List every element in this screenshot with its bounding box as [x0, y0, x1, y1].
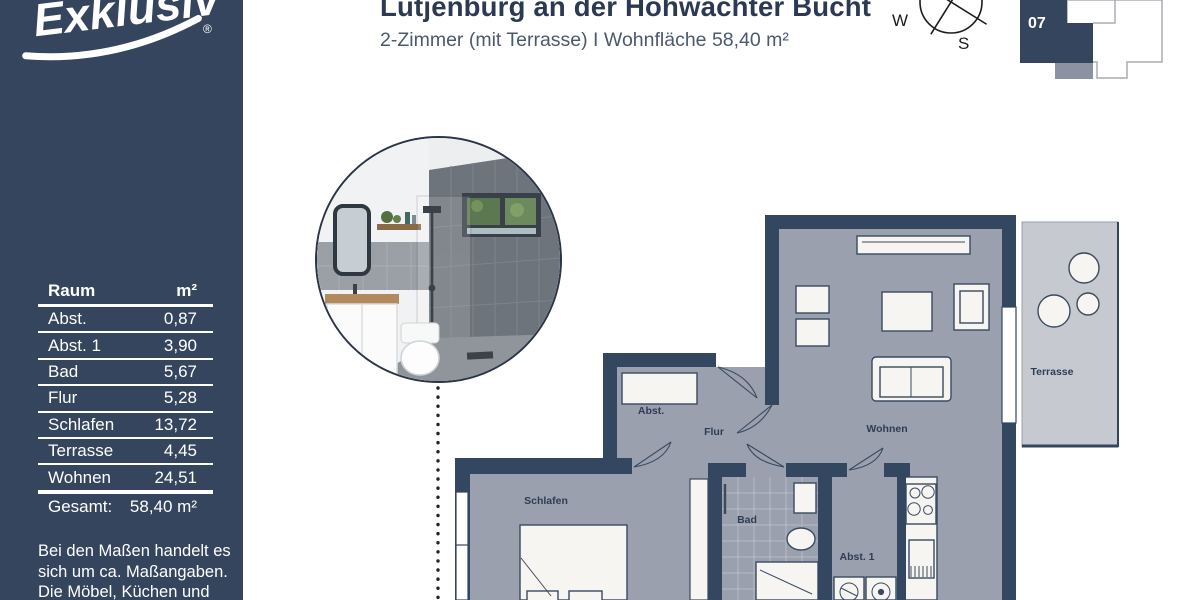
bed: [520, 525, 627, 600]
brand-logo: Exklusiv ®: [0, 0, 243, 100]
sidebar: Exklusiv ® Raum m² Abst. 0,87 Abst. 1 3,…: [0, 0, 243, 600]
abst-shelf: [622, 373, 697, 404]
room-name: Wohnen: [48, 468, 111, 488]
compass-west-label: W: [892, 11, 908, 30]
total-value: 58,40 m²: [130, 497, 197, 517]
compass-south-label: S: [958, 34, 969, 53]
room-name: Abst. 1: [48, 336, 101, 356]
table-row: Bad 5,67: [38, 360, 213, 386]
terrace-table: [1077, 293, 1099, 315]
unit-number-label: 07: [1028, 15, 1046, 32]
toilet: [401, 323, 439, 343]
col-room: Raum: [48, 281, 95, 301]
washer: [834, 577, 864, 600]
disclaimer-line: sich um ca. Maßangaben.: [38, 562, 233, 583]
sideboard: [857, 236, 970, 254]
label-schlafen: Schlafen: [524, 495, 568, 507]
label-bad: Bad: [737, 514, 757, 526]
room-area: 5,67: [164, 362, 197, 382]
bathroom-shelf: [377, 224, 421, 230]
dryer: [866, 577, 896, 600]
room-table-header: Raum m²: [38, 278, 213, 307]
dining-chair: [796, 286, 829, 313]
label-wohnen: Wohnen: [866, 423, 907, 435]
pillow: [527, 591, 558, 600]
terrace-door-window: [1002, 307, 1016, 423]
room-name: Abst.: [48, 309, 87, 329]
room-area: 0,87: [164, 309, 197, 329]
bath-sink: [794, 483, 816, 513]
room-area: 4,45: [164, 441, 197, 461]
site-plan: 07: [1010, 0, 1180, 92]
armchair-seat: [960, 291, 983, 323]
dining-table: [882, 292, 932, 331]
label-abst: Abst.: [638, 405, 664, 417]
brand-registered-mark: ®: [203, 22, 212, 36]
site-plan-terrace-shape: [1055, 63, 1093, 79]
floor-plan: Abst. Flur Wohnen Schlafen Bad Abst. 1 T…: [440, 210, 1140, 600]
room-area: 13,72: [154, 415, 197, 435]
table-row: Abst. 0,87: [38, 307, 213, 333]
pillow: [569, 591, 602, 600]
disclaimer-line: Bei den Maßen handelt es: [38, 541, 233, 562]
label-terrasse: Terrasse: [1030, 366, 1073, 378]
room-terrasse: [1022, 222, 1118, 447]
bath-toilet: [787, 528, 815, 550]
schlafen-wardrobe: [690, 479, 708, 600]
table-row: Abst. 1 3,90: [38, 333, 213, 359]
terrace-chair: [1038, 295, 1070, 327]
schlafen-window: [456, 492, 468, 600]
page-subtitle: 2-Zimmer (mit Terrasse) I Wohnfläche 58,…: [380, 29, 789, 52]
table-row: Wohnen 24,51: [38, 465, 213, 492]
kitchen-sink-unit: [909, 540, 934, 578]
col-area: m²: [176, 281, 197, 301]
label-abst1: Abst. 1: [839, 551, 874, 563]
label-flur: Flur: [704, 426, 724, 438]
room-name: Schlafen: [48, 415, 114, 435]
page-title: Lütjenburg an der Hohwachter Bucht: [380, 0, 940, 23]
dining-chair: [796, 319, 829, 346]
bath-shower: [756, 562, 818, 600]
disclaimer-text: Bei den Maßen handelt es sich um ca. Maß…: [38, 541, 233, 600]
room-area: 5,28: [164, 388, 197, 408]
total-label: Gesamt:: [48, 497, 112, 517]
room-area: 24,51: [154, 468, 197, 488]
bathroom-mirror: [335, 206, 369, 274]
compass-icon: W S: [880, 0, 1010, 58]
table-row: Flur 5,28: [38, 386, 213, 412]
table-row: Terrasse 4,45: [38, 439, 213, 465]
room-area: 3,90: [164, 336, 197, 356]
vanity-counter: [325, 294, 399, 304]
terrace-chair: [1069, 253, 1099, 283]
room-name: Flur: [48, 388, 77, 408]
table-total-row: Gesamt: 58,40 m²: [38, 493, 213, 521]
room-name: Bad: [48, 362, 78, 382]
disclaimer-line: Die Möbel, Küchen und: [38, 582, 233, 600]
table-row: Schlafen 13,72: [38, 413, 213, 439]
brochure-page: Exklusiv ® Raum m² Abst. 0,87 Abst. 1 3,…: [0, 0, 1200, 600]
room-table: Raum m² Abst. 0,87 Abst. 1 3,90 Bad 5,67…: [38, 278, 213, 521]
room-name: Terrasse: [48, 441, 113, 461]
